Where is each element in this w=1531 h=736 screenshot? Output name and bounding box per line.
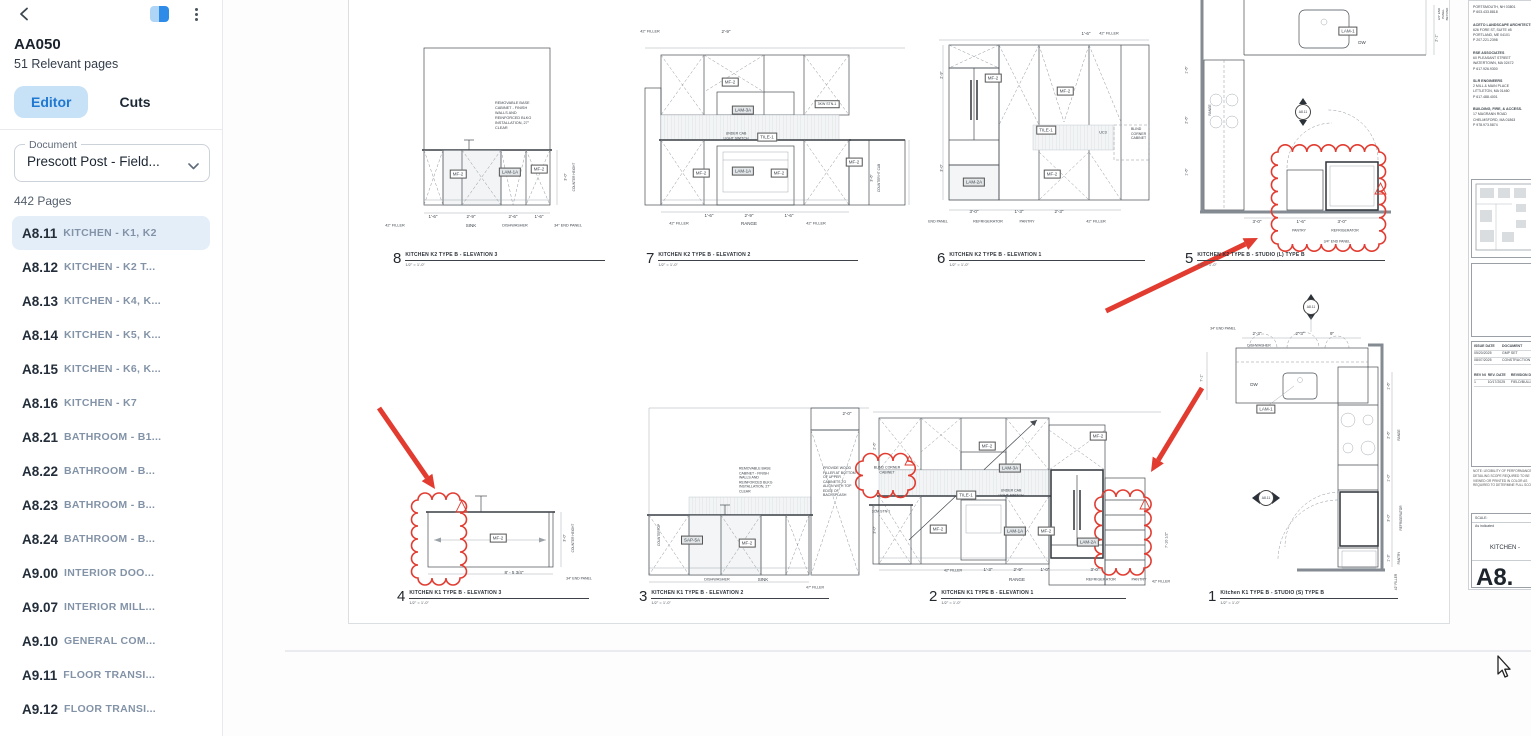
drawing-annotation: LAM-2A bbox=[963, 178, 985, 187]
drawing-title-8: 8KITCHEN K2 TYPE B - ELEVATION 31/2" = 1… bbox=[393, 252, 605, 267]
drawing-annotation: 42" FILLER bbox=[1394, 574, 1398, 590]
page-code: A8.23 bbox=[22, 498, 58, 513]
drawing-title-3: 3KITCHEN K1 TYPE B - ELEVATION 21/2" = 1… bbox=[639, 590, 829, 605]
sidebar-item-a8-15[interactable]: A8.15KITCHEN - K6, K... bbox=[12, 352, 210, 386]
drawing-annotation: RANGE bbox=[1397, 429, 1401, 440]
drawing-annotation: LAM-1A bbox=[1004, 527, 1026, 536]
drawing-annotation: 7'-10 1/2" bbox=[1165, 532, 1170, 548]
drawing-annotation: MF-2 bbox=[693, 169, 710, 178]
drawing-annotation: 1'-6" bbox=[1387, 382, 1392, 390]
titleblock-cell: CONSTRUCTION bbox=[1502, 358, 1531, 364]
sheet-number: A8. bbox=[1472, 560, 1531, 590]
page-name: BATHROOM - B... bbox=[64, 533, 155, 545]
drawing-annotation: MF-2 bbox=[846, 158, 863, 167]
drawing-annotation: 34" END PANEL bbox=[566, 577, 592, 582]
drawing-annotation: BLIND CORNER CABINET bbox=[874, 465, 900, 474]
drawing-annotation: LAM-3A bbox=[732, 106, 754, 115]
drawing-annotation: 2'-9" bbox=[722, 29, 731, 35]
scale-value: As indicated bbox=[1472, 523, 1531, 529]
drawing-annotation: 42" FILLER bbox=[1086, 220, 1106, 225]
drawing-title-5: 5KITCHEN K2 TYPE B - STUDIO (L) TYPE B1/… bbox=[1185, 252, 1385, 267]
drawing-annotation: 42" FILLER bbox=[640, 30, 660, 35]
drawing-annotation: TILE-1 bbox=[1036, 126, 1056, 135]
drawing-annotation: 3/4" END PANEL BEYOND bbox=[1438, 8, 1450, 21]
page-separator bbox=[285, 650, 1531, 652]
drawing-annotation: MF-2 bbox=[985, 74, 1002, 83]
titleblock-cell: GMP SET bbox=[1502, 351, 1531, 357]
page-code: A9.07 bbox=[22, 600, 58, 615]
drawing-annotation: MF-2 bbox=[531, 165, 548, 174]
page-name: KITCHEN - K7 bbox=[64, 397, 137, 409]
titleblock-cell: REVISION DESC bbox=[1511, 373, 1531, 379]
drawing-annotation: COUNTER HT CAB bbox=[877, 164, 881, 192]
drawing-annotation: 2'-9" bbox=[1014, 567, 1023, 573]
page-code: A8.24 bbox=[22, 532, 58, 547]
drawing-annotation: RANGE bbox=[741, 221, 757, 227]
page-code: A9.12 bbox=[22, 702, 58, 717]
drawing-annotation: 42" FILLER bbox=[385, 224, 405, 229]
drawing-annotation: SAP-5A bbox=[681, 536, 703, 545]
drawing-annotation: 1'-6" bbox=[705, 213, 714, 219]
drawing-annotation: REFRIGERATOR bbox=[1331, 229, 1358, 234]
page-name: BATHROOM - B... bbox=[64, 499, 155, 511]
drawing-annotation: 1'-0" bbox=[1041, 567, 1050, 573]
drawing-annotation: PANTRY bbox=[1397, 552, 1401, 565]
page-code: A9.11 bbox=[22, 668, 57, 683]
drawing-annotation: A8.11 bbox=[1258, 490, 1274, 506]
drawing-annotation: 2'-3" bbox=[1296, 331, 1305, 337]
tab-cuts[interactable]: Cuts bbox=[102, 86, 167, 118]
drawing-annotation: 2'-0" bbox=[843, 411, 852, 417]
drawing-annotation: 3'-0" bbox=[563, 534, 568, 542]
drawing-annotation: PANTRY bbox=[1131, 578, 1146, 583]
drawing-annotation: PROVIDE WOOD FILLER AT BOTTOM OF UPPER C… bbox=[823, 466, 856, 498]
drawing-annotation: MF-2 bbox=[1057, 87, 1074, 96]
drawing-annotation: COUNTER HEIGHT bbox=[572, 163, 576, 192]
document-select-label: Document bbox=[25, 139, 81, 151]
drawing-annotation: 2'-6" bbox=[1387, 431, 1392, 439]
tab-editor[interactable]: Editor bbox=[14, 86, 88, 118]
drawing-annotation: 2'-6" bbox=[873, 442, 878, 450]
drawing-annotation: 2'-3" bbox=[1253, 331, 1262, 337]
sidebar-header bbox=[0, 0, 222, 28]
sidebar-item-a8-16[interactable]: A8.16KITCHEN - K7 bbox=[12, 386, 210, 420]
drawing-linework bbox=[349, 0, 1449, 623]
page-name: BATHROOM - B... bbox=[64, 465, 155, 477]
drawing-annotation: 42" FILLER bbox=[944, 569, 962, 574]
drawing-annotation: 47" FILLER bbox=[806, 586, 824, 591]
drawing-annotation: 3'-0" bbox=[970, 209, 979, 215]
more-menu-icon[interactable] bbox=[186, 5, 206, 23]
app-window: { "colors":{"accent":"#1f78d1","tab_acti… bbox=[0, 0, 1531, 736]
drawing-annotation: 3'-6" bbox=[870, 174, 875, 182]
drawing-annotation: UNDER CAB LIGHT SWITCH bbox=[998, 488, 1023, 497]
drawing-annotation: 2'-9" bbox=[745, 213, 754, 219]
sidebar-item-a8-14[interactable]: A8.14KITCHEN - K5, K... bbox=[12, 318, 210, 352]
drawing-panel-2 bbox=[869, 412, 1161, 585]
titleblock-cell: DOCUMENT bbox=[1502, 344, 1531, 350]
drawing-title-4: 4KITCHEN K1 TYPE B - ELEVATION 31/2" = 1… bbox=[397, 590, 589, 605]
drawing-annotation: MF-2 bbox=[979, 442, 996, 451]
drawing-annotation: 42" FILLER bbox=[1152, 580, 1170, 585]
drawing-annotation: SINK bbox=[466, 223, 477, 229]
drawing-annotation: LAM-1 bbox=[1338, 27, 1357, 36]
drawing-annotation: MF-2 bbox=[930, 525, 947, 534]
chevron-down-icon bbox=[188, 157, 199, 175]
drawing-annotation: 34" END PANEL bbox=[554, 224, 582, 229]
sheet-titleblock: PORTSMOUTH, NH 03801P 603.433.8818ACETO … bbox=[1468, 0, 1531, 590]
sidebar-item-a8-13[interactable]: A8.13KITCHEN - K4, K... bbox=[12, 284, 210, 318]
page-name: GENERAL COM... bbox=[64, 635, 156, 647]
drawing-title-1: 1Kitchen K1 TYPE B - STUDIO (S) TYPE B1/… bbox=[1208, 590, 1398, 605]
page-code: A8.21 bbox=[22, 430, 58, 445]
drawing-annotation: 1'-3" bbox=[1015, 209, 1024, 215]
sidebar-item-a9-10[interactable]: A9.10GENERAL COM... bbox=[12, 624, 210, 658]
sidebar-item-a9-07[interactable]: A9.07INTERIOR MILL... bbox=[12, 590, 210, 624]
drawing-annotation: 3'-0" bbox=[940, 164, 945, 172]
drawing-annotation: 42" FILLER bbox=[806, 222, 826, 227]
drawing-annotation: DW bbox=[1358, 40, 1366, 46]
page-code: A9.00 bbox=[22, 566, 58, 581]
back-icon[interactable] bbox=[14, 5, 34, 23]
sidebar: AA050 51 Relevant pages EditorCuts Docum… bbox=[0, 0, 223, 736]
page-name: KITCHEN - K4, K... bbox=[64, 295, 161, 307]
drawing-annotation: MF-2 bbox=[1038, 527, 1055, 536]
drawing-annotation: 9" bbox=[1330, 331, 1334, 337]
sheet-a8-11[interactable]: 8KITCHEN K2 TYPE B - ELEVATION 31/2" = 1… bbox=[348, 0, 1450, 624]
sidebar-item-a8-12[interactable]: A8.12KITCHEN - K2 T... bbox=[12, 250, 210, 284]
sheet-title: KITCHEN - bbox=[1472, 545, 1531, 551]
relevant-pages-count: 51 Relevant pages bbox=[14, 57, 222, 71]
page-name: FLOOR TRANSI... bbox=[64, 703, 156, 715]
page-code: A8.12 bbox=[22, 260, 58, 275]
drawing-annotation: LAM-3A bbox=[999, 464, 1021, 473]
titleblock-issue-table: ISSUE DATEDOCUMENT05/20/2025GMP SET08/07… bbox=[1471, 341, 1531, 467]
drawing-annotation: UC3 bbox=[1099, 131, 1107, 136]
drawing-annotation: LAM-2A bbox=[1077, 538, 1099, 547]
drawing-annotation: 3'-0" bbox=[1338, 219, 1347, 225]
sidebar-item-a8-11[interactable]: A8.11KITCHEN - K1, K2 bbox=[12, 216, 210, 250]
drawing-annotation: MF-2 bbox=[450, 170, 467, 179]
drawing-annotation: 2'-9" bbox=[467, 214, 476, 220]
drawing-annotation: 3'-0" bbox=[1091, 567, 1100, 573]
page-name: KITCHEN - K1, K2 bbox=[63, 227, 156, 239]
page-name: BATHROOM - B1... bbox=[64, 431, 161, 443]
titleblock-cell: 1 bbox=[1474, 380, 1486, 386]
titleblock-consultants: PORTSMOUTH, NH 03801P 603.433.8818ACETO … bbox=[1473, 5, 1531, 131]
drawing-annotation: MF-2 bbox=[1090, 432, 1107, 441]
drawing-title-7: 7KITCHEN K2 TYPE B - ELEVATION 21/2" = 1… bbox=[646, 252, 858, 267]
sidebar-item-a8-21[interactable]: A8.21BATHROOM - B1... bbox=[12, 420, 210, 454]
drawing-annotation: 1'-6" bbox=[1297, 219, 1306, 225]
drawing-annotation: BLIND CORNER CABINET bbox=[1131, 127, 1146, 141]
drawing-annotation: PANTRY bbox=[1292, 229, 1306, 234]
drawing-annotation: REMOVABLE BASE CABINET - FINISH WALLS AN… bbox=[495, 101, 531, 131]
drawing-annotation: 2'-6" bbox=[1185, 116, 1190, 124]
titleblock-empty-box bbox=[1471, 263, 1531, 337]
drawing-annotation: RANGE bbox=[1208, 104, 1212, 115]
pages-count: 442 Pages bbox=[14, 194, 222, 208]
drawing-annotation: 3'-0" bbox=[1387, 514, 1392, 522]
drawing-annotation: 7'-1" bbox=[1200, 374, 1205, 382]
titleblock-cell: FIELD/BULLETIN bbox=[1511, 380, 1531, 386]
drawing-annotation: 3'-0" bbox=[1253, 219, 1262, 225]
drawing-annotation: DISHWASHER bbox=[502, 224, 528, 229]
titleblock-cell: REV NO. bbox=[1474, 373, 1486, 379]
titleblock-cell: ISSUE DATE bbox=[1474, 344, 1500, 350]
drawing-annotation: MF-2 bbox=[1044, 170, 1061, 179]
drawing-annotation: 2'-3" bbox=[1055, 209, 1064, 215]
drawing-annotation: END PANEL bbox=[928, 220, 948, 225]
drawing-annotation: 34" END PANEL bbox=[1210, 327, 1236, 332]
drawing-annotation: RANGE bbox=[1009, 577, 1025, 583]
page-name: KITCHEN - K5, K... bbox=[64, 329, 161, 341]
sidebar-item-a9-11[interactable]: A9.11FLOOR TRANSI... bbox=[12, 658, 210, 692]
titleblock-scale-box: SCALE: As indicated KITCHEN - A8. bbox=[1471, 513, 1531, 588]
sidebar-item-a9-00[interactable]: A9.00INTERIOR DOO... bbox=[12, 556, 210, 590]
drawing-annotation: REMOVABLE BASE CABINET - FINISH WALLS AN… bbox=[739, 466, 772, 493]
page-code: A8.13 bbox=[22, 294, 58, 309]
drawing-annotation: SINK bbox=[758, 577, 769, 583]
scale-label: SCALE: bbox=[1475, 516, 1487, 520]
page-code: A8.15 bbox=[22, 362, 58, 377]
drawing-annotation: TILE-1 bbox=[757, 133, 777, 142]
page-code: A8.22 bbox=[22, 464, 58, 479]
page-name: KITCHEN - K6, K... bbox=[64, 363, 161, 375]
page-code: A8.16 bbox=[22, 396, 58, 411]
titleblock-keyplan bbox=[1471, 179, 1531, 258]
document-canvas[interactable]: 8KITCHEN K2 TYPE B - ELEVATION 31/2" = 1… bbox=[222, 0, 1531, 736]
drawing-title-2: 2KITCHEN K1 TYPE B - ELEVATION 11/2" = 1… bbox=[929, 590, 1126, 605]
drawing-annotation: 3/4" END PANEL bbox=[1324, 240, 1351, 245]
drawing-annotation: MF-2 bbox=[490, 534, 507, 543]
drawing-annotation: TILE-1 bbox=[956, 491, 976, 500]
drawing-annotation: LAM-1A bbox=[499, 168, 521, 177]
sidebar-item-a9-12[interactable]: A9.12FLOOR TRANSI... bbox=[12, 692, 210, 726]
drawing-annotation: 1'-0" bbox=[1387, 474, 1392, 482]
drawing-annotation: MF-2 bbox=[722, 78, 739, 87]
tabs: EditorCuts bbox=[0, 86, 222, 118]
drawing-annotation: LAM-1A bbox=[732, 167, 754, 176]
drawing-annotation: DW bbox=[1250, 382, 1258, 388]
drawing-annotation: 1'-3" bbox=[1387, 554, 1392, 562]
drawing-annotation: 1'-6" bbox=[1185, 168, 1190, 176]
drawing-panel-8 bbox=[422, 48, 557, 213]
drawing-title-6: 6KITCHEN K2 TYPE B - ELEVATION 11/2" = 1… bbox=[937, 252, 1145, 267]
titleblock-cell: 05/20/2025 bbox=[1474, 351, 1500, 357]
sidebar-item-a8-24[interactable]: A8.24BATHROOM - B... bbox=[12, 522, 210, 556]
drawing-annotation: 3KW STN-1 bbox=[815, 100, 840, 108]
divider bbox=[0, 129, 222, 130]
panel-toggle-icon[interactable] bbox=[149, 5, 169, 23]
drawing-annotation: 2'-9" bbox=[940, 71, 945, 79]
drawing-annotation: MF-2 bbox=[739, 539, 756, 548]
drawing-panel-7 bbox=[645, 48, 909, 212]
drawing-annotation: 42" FILLER bbox=[1099, 32, 1119, 37]
drawing-annotation: REFRIGERATOR bbox=[1086, 578, 1116, 583]
page-title: AA050 bbox=[14, 36, 222, 53]
page-code: A8.11 bbox=[22, 226, 57, 241]
drawing-annotation: 2'-1" bbox=[1435, 34, 1440, 42]
page-list: A8.11KITCHEN - K1, K2A8.12KITCHEN - K2 T… bbox=[0, 216, 222, 736]
drawing-annotation: 1'-3" bbox=[984, 567, 993, 573]
document-select[interactable]: Document Prescott Post - Field... bbox=[14, 144, 210, 182]
page-name: KITCHEN - K2 T... bbox=[64, 261, 155, 273]
drawing-panel-5 bbox=[1200, 0, 1434, 218]
sidebar-item-a8-22[interactable]: A8.22BATHROOM - B... bbox=[12, 454, 210, 488]
document-select-value: Prescott Post - Field... bbox=[27, 154, 160, 169]
drawing-annotation: UNDER CAB LIGHT SWITCH bbox=[723, 131, 748, 140]
drawing-annotation: PANTRY bbox=[1019, 220, 1034, 225]
drawing-annotation: 3CM STN-1 bbox=[872, 510, 890, 515]
page-code: A9.10 bbox=[22, 634, 58, 649]
drawing-annotation: LAM-1 bbox=[1256, 405, 1275, 414]
drawing-annotation: 1'-6" bbox=[785, 213, 794, 219]
drawing-annotation: 8' - 5 3/4" bbox=[505, 570, 524, 576]
drawing-annotation: 3'-0" bbox=[564, 173, 569, 181]
titleblock-note: NOTE: LEGIBILITY OF PERFORMANCE DETAILIN… bbox=[1473, 469, 1531, 488]
drawing-annotation: DISHWASHER bbox=[704, 578, 730, 583]
titleblock-cell: 10/17/2025 bbox=[1488, 380, 1509, 386]
drawing-annotation: 42" FILLER bbox=[669, 222, 689, 227]
titleblock-cell: REV. DATE bbox=[1488, 373, 1509, 379]
drawing-annotation: 3'-0" bbox=[873, 526, 878, 534]
drawing-annotation: MF-2 bbox=[771, 169, 788, 178]
drawing-annotation: A8.11 bbox=[1295, 104, 1311, 120]
page-name: FLOOR TRANSI... bbox=[63, 669, 155, 681]
drawing-annotation: 1'-6" bbox=[1082, 31, 1091, 37]
drawing-annotation: COUNTERTOP bbox=[657, 524, 661, 546]
drawing-annotation: REFRIGERATOR bbox=[1399, 505, 1403, 530]
drawing-annotation: 1'-6" bbox=[429, 214, 438, 220]
drawing-annotation: DISHWASHER bbox=[1247, 344, 1271, 349]
mouse-cursor bbox=[1493, 653, 1512, 679]
sidebar-item-a8-23[interactable]: A8.23BATHROOM - B... bbox=[12, 488, 210, 522]
drawing-annotation: 1'-6" bbox=[535, 214, 544, 220]
page-code: A8.14 bbox=[22, 328, 58, 343]
page-name: INTERIOR DOO... bbox=[64, 567, 154, 579]
drawing-annotation: A8.11 bbox=[1303, 299, 1319, 315]
page-name: INTERIOR MILL... bbox=[64, 601, 155, 613]
drawing-annotation: 2'-6" bbox=[509, 214, 518, 220]
drawing-annotation: 1'-6" bbox=[1185, 66, 1190, 74]
sidebar-item-a9-20[interactable]: A9.20INTERIOR DET... bbox=[12, 726, 210, 736]
titleblock-cell: 08/07/2025 bbox=[1474, 358, 1500, 364]
drawing-annotation: COUNTER HEIGHT bbox=[571, 524, 575, 553]
drawing-annotation: REFRIGERATOR bbox=[973, 220, 1003, 225]
